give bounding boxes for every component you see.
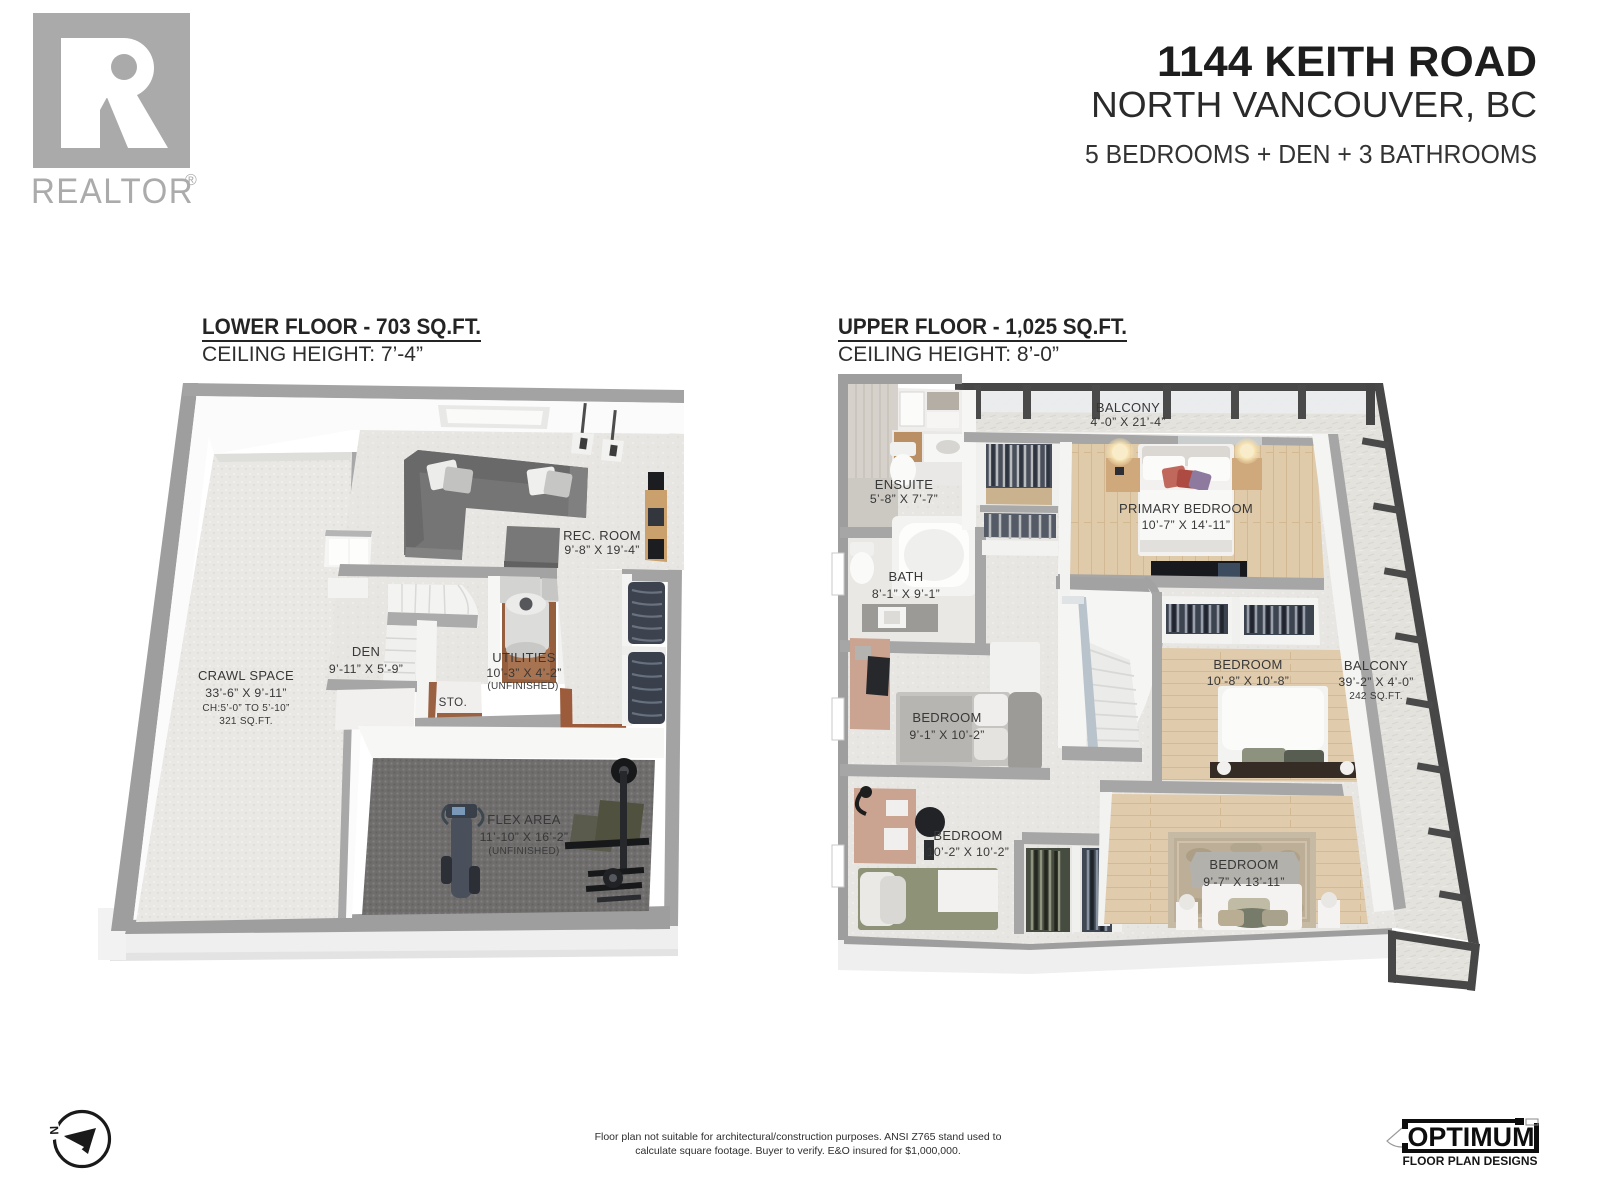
svg-text:REC. ROOM: REC. ROOM (563, 528, 641, 543)
svg-text:FLOOR PLAN DESIGNS: FLOOR PLAN DESIGNS (1403, 1154, 1538, 1168)
svg-text:5’-8” X 7’-7”: 5’-8” X 7’-7” (870, 492, 938, 506)
svg-text:DEN: DEN (352, 644, 380, 659)
svg-text:BEDROOM: BEDROOM (1209, 857, 1278, 872)
svg-text:CEILING HEIGHT: 8’-0”: CEILING HEIGHT: 8’-0” (838, 343, 1059, 366)
svg-text:1144 KEITH ROAD: 1144 KEITH ROAD (1157, 38, 1537, 86)
svg-text:CEILING HEIGHT: 7’-4”: CEILING HEIGHT: 7’-4” (202, 343, 423, 366)
svg-text:Floor plan not suitable for ar: Floor plan not suitable for architectura… (595, 1131, 1002, 1143)
svg-text:calculate square footage. Buye: calculate square footage. Buyer to verif… (635, 1145, 961, 1157)
svg-text:(UNFINISHED): (UNFINISHED) (487, 681, 558, 692)
svg-text:BEDROOM: BEDROOM (1213, 657, 1282, 672)
svg-text:CH:5’-0” TO 5’-10”: CH:5’-0” TO 5’-10” (202, 703, 289, 714)
svg-text:®: ® (185, 172, 197, 189)
svg-text:10’-3” X 4’-2”: 10’-3” X 4’-2” (486, 666, 561, 680)
svg-text:321 SQ.FT.: 321 SQ.FT. (219, 716, 273, 727)
svg-text:10’-8” X 10’-8”: 10’-8” X 10’-8” (1207, 674, 1289, 688)
svg-text:242 SQ.FT.: 242 SQ.FT. (1349, 691, 1403, 702)
svg-text:UTILITIES: UTILITIES (492, 650, 555, 665)
svg-text:PRIMARY BEDROOM: PRIMARY BEDROOM (1119, 501, 1253, 516)
svg-text:11’-10” X 16’-2”: 11’-10” X 16’-2” (480, 830, 569, 844)
svg-text:9’-1” X 10’-2”: 9’-1” X 10’-2” (909, 728, 984, 742)
svg-text:BATH: BATH (889, 569, 924, 584)
svg-text:FLEX AREA: FLEX AREA (487, 812, 561, 827)
svg-text:BALCONY: BALCONY (1096, 400, 1160, 415)
svg-text:8’-1” X 9’-1”: 8’-1” X 9’-1” (872, 587, 940, 601)
svg-text:STO.: STO. (439, 697, 468, 709)
svg-text:4’-0” X 21’-4”: 4’-0” X 21’-4” (1090, 415, 1165, 429)
svg-text:33’-6” X 9’-11”: 33’-6” X 9’-11” (205, 686, 287, 700)
svg-text:(UNFINISHED): (UNFINISHED) (488, 846, 559, 857)
svg-text:ENSUITE: ENSUITE (875, 477, 933, 492)
svg-text:REALTOR: REALTOR (31, 172, 194, 211)
svg-text:10’-7” X 14’-11”: 10’-7” X 14’-11” (1142, 518, 1231, 532)
svg-text:BALCONY: BALCONY (1344, 658, 1408, 673)
svg-text:9’-8” X 19’-4”: 9’-8” X 19’-4” (564, 543, 639, 557)
svg-text:BEDROOM: BEDROOM (933, 828, 1002, 843)
svg-text:10’-2” X 10’-2”: 10’-2” X 10’-2” (927, 845, 1009, 859)
svg-text:39’-2” X 4’-0”: 39’-2” X 4’-0” (1338, 675, 1413, 689)
svg-text:LOWER FLOOR - 703 SQ.FT.: LOWER FLOOR - 703 SQ.FT. (202, 314, 481, 339)
svg-text:9’-11” X 5’-9”: 9’-11” X 5’-9” (329, 662, 403, 676)
svg-text:N: N (47, 1126, 61, 1135)
svg-text:BEDROOM: BEDROOM (912, 710, 981, 725)
svg-text:9’-7” X 13’-11”: 9’-7” X 13’-11” (1203, 875, 1285, 889)
svg-text:OPTIMUM: OPTIMUM (1408, 1122, 1535, 1152)
svg-text:UPPER FLOOR - 1,025 SQ.FT.: UPPER FLOOR - 1,025 SQ.FT. (838, 314, 1127, 339)
svg-text:CRAWL SPACE: CRAWL SPACE (198, 668, 294, 683)
svg-text:5 BEDROOMS + DEN + 3 BATHROOMS: 5 BEDROOMS + DEN + 3 BATHROOMS (1085, 139, 1537, 169)
svg-text:NORTH VANCOUVER, BC: NORTH VANCOUVER, BC (1091, 84, 1537, 125)
